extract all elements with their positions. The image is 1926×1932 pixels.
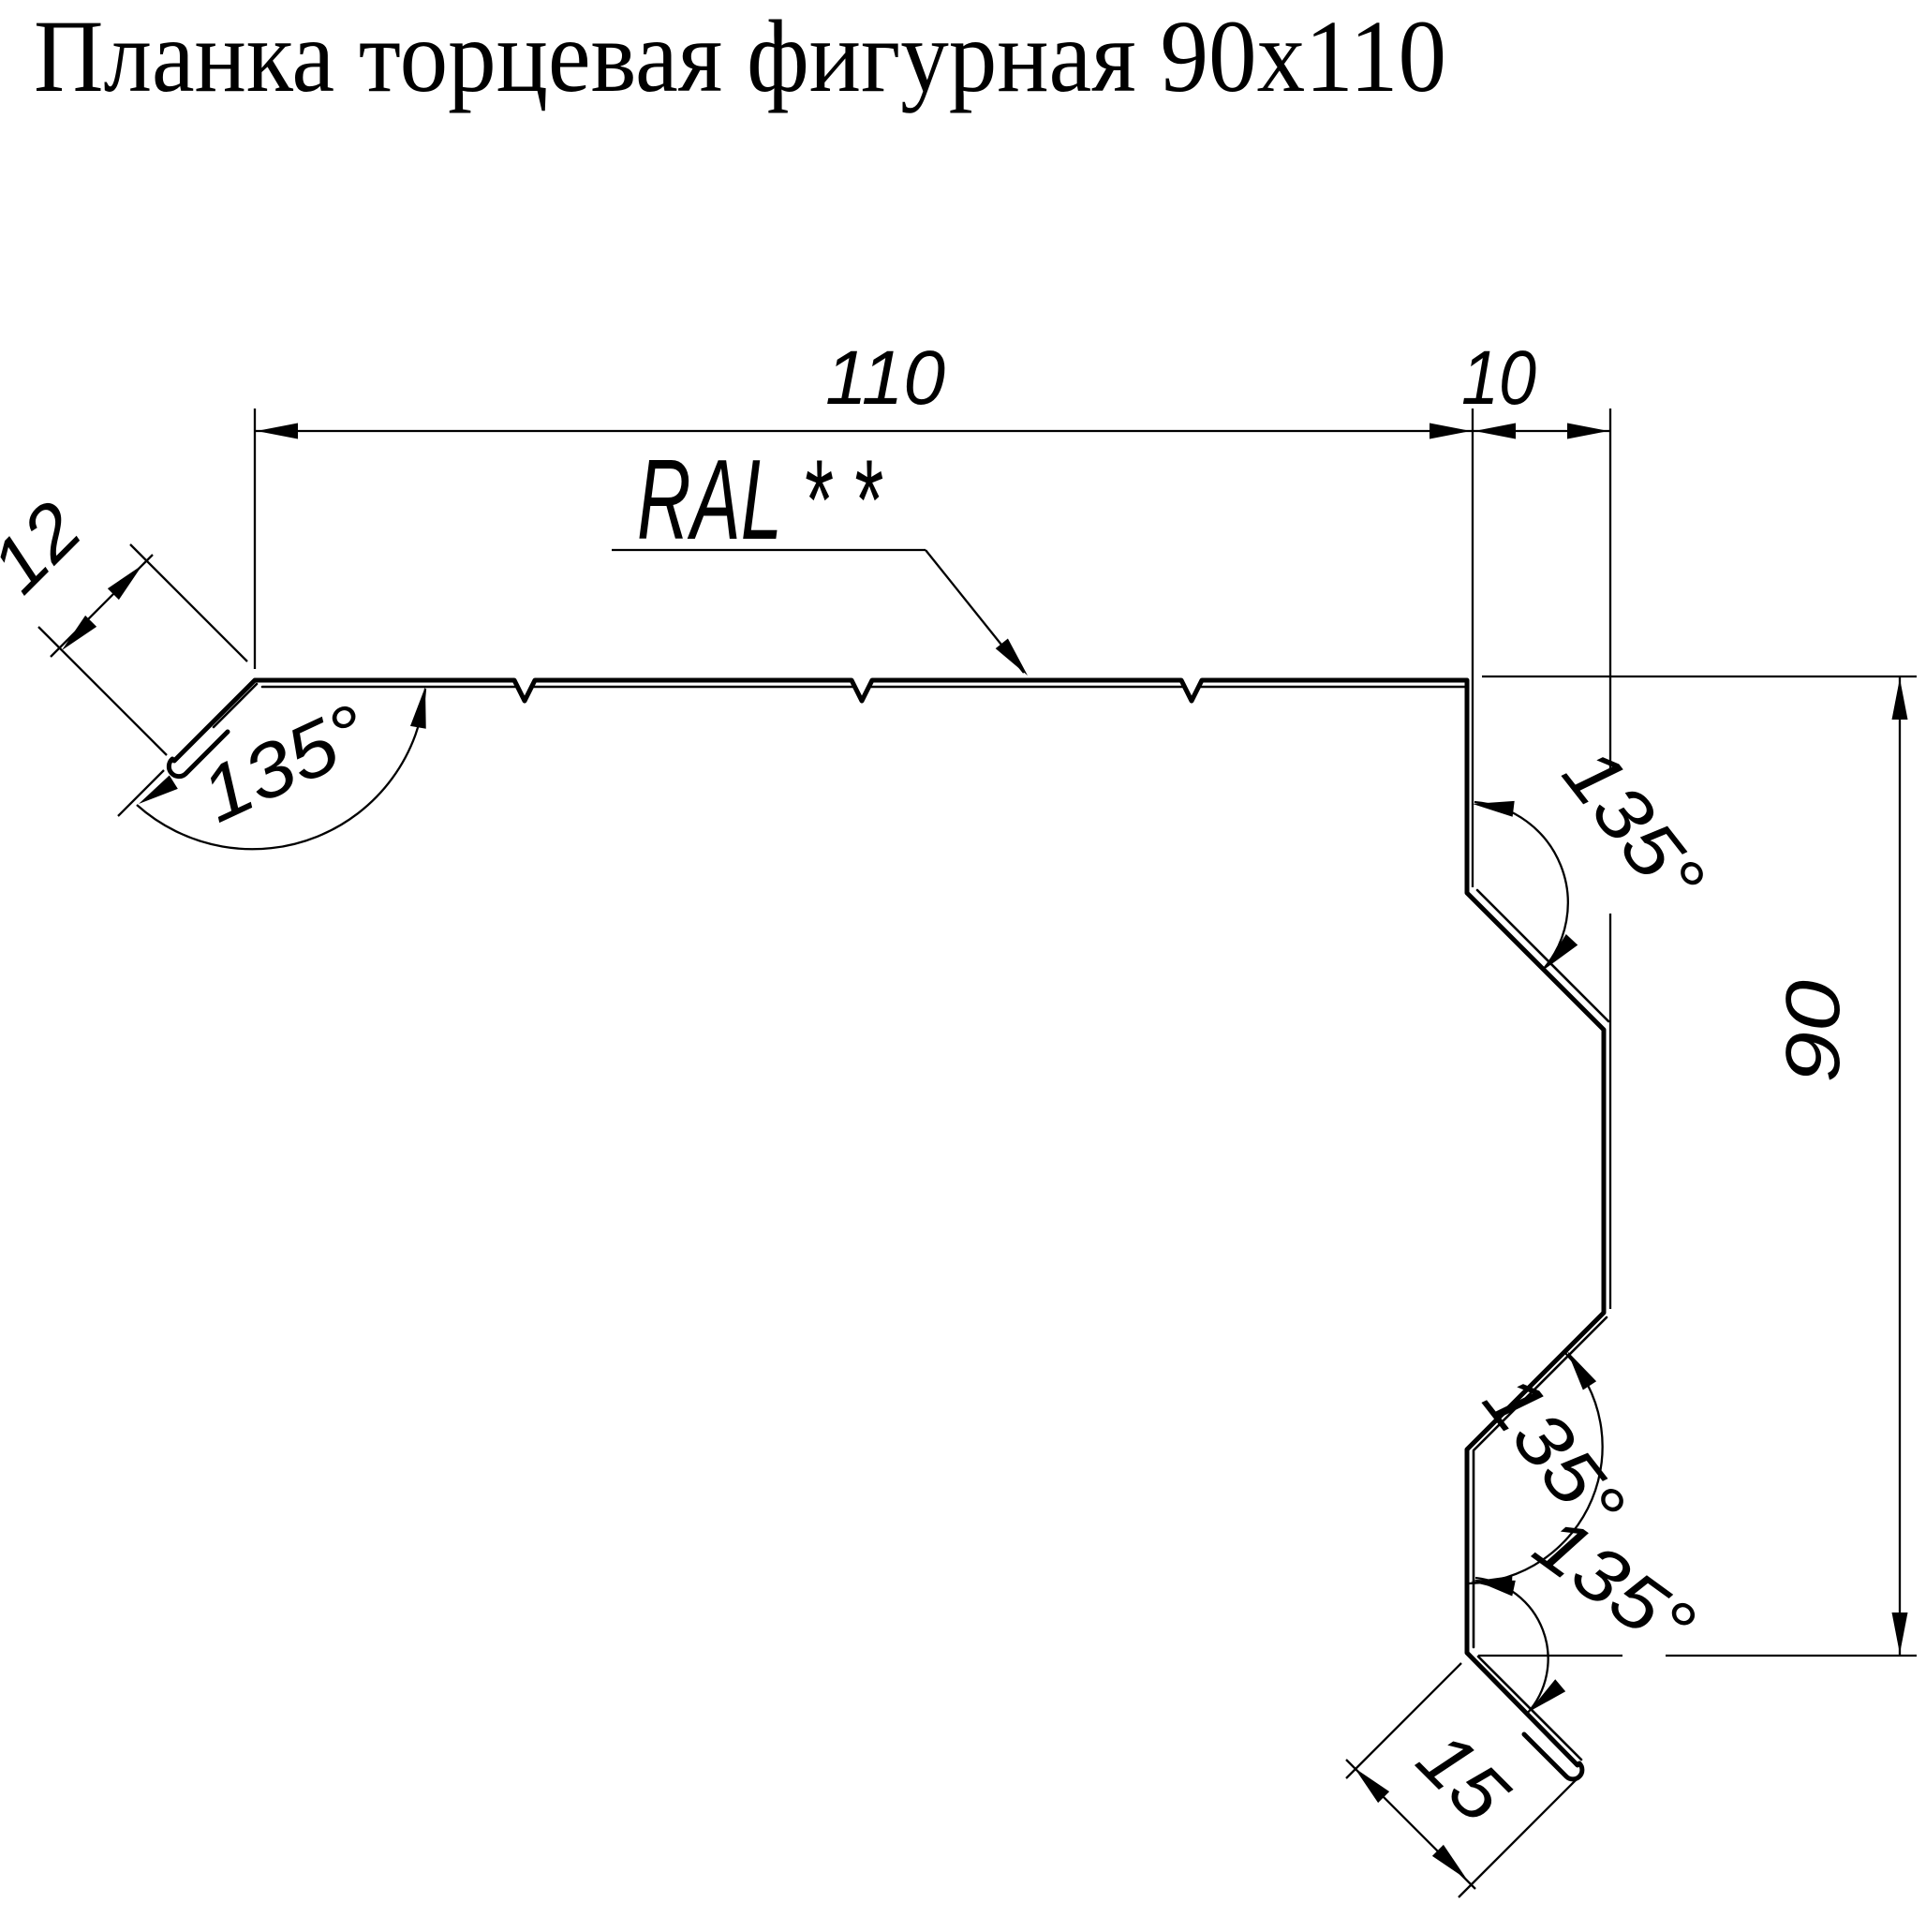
- ext-line-12-end: [38, 627, 167, 755]
- dim-90-arrow-bottom: [1892, 1612, 1908, 1654]
- dim-12-arrow-lower: [56, 616, 96, 656]
- dim-10-arrow-left: [1474, 424, 1516, 439]
- angle-left-arrow-top: [410, 686, 433, 729]
- dim-110-label: 110: [825, 335, 945, 421]
- drawing-page: Планка торцевая фигурная 90x110 110: [0, 0, 1926, 1932]
- angle-top-right-arrow-upper: [1472, 796, 1515, 817]
- dim-10-arrow-right: [1567, 424, 1608, 439]
- dim-15-label: 15: [1401, 1716, 1525, 1839]
- angle-top-right-bend: 135°: [1472, 732, 1721, 975]
- dim-12-label: 12: [0, 486, 97, 610]
- page-title: Планка торцевая фигурная 90x110: [34, 0, 1446, 113]
- dim-15-arrow-lower: [1432, 1845, 1473, 1885]
- ext-line-12-corner: [130, 544, 247, 661]
- drawing-canvas: Планка торцевая фигурная 90x110 110: [0, 0, 1926, 1932]
- profile-inner-tail: [1478, 1657, 1581, 1760]
- profile-inner-right-upper: [1477, 890, 1608, 1021]
- angle-bottom-arc: [1475, 1578, 1548, 1714]
- ral-leader-arrow: [996, 638, 1034, 680]
- profile-outer-line: [174, 680, 1604, 1765]
- angle-left-corner: 135°: [118, 686, 433, 850]
- dim-12-arrow-upper: [108, 559, 148, 600]
- dim-110-arrow-right: [1430, 424, 1471, 439]
- ral-label: RAL * *: [637, 436, 882, 563]
- angle-top-right-label: 135°: [1547, 732, 1721, 921]
- dimension-110: 110: [255, 335, 1473, 887]
- dim-10-label: 10: [1461, 335, 1536, 421]
- dim-90-label: 90: [1770, 980, 1856, 1083]
- profile-outline: [169, 680, 1608, 1779]
- dimension-12: 12: [0, 486, 247, 755]
- dim-110-arrow-left: [257, 424, 298, 439]
- ral-callout: RAL * *: [612, 436, 1034, 680]
- profile-inner-top-line: [214, 684, 257, 727]
- dim-90-arrow-top: [1892, 678, 1908, 720]
- dim-15-arrow-upper: [1349, 1762, 1389, 1803]
